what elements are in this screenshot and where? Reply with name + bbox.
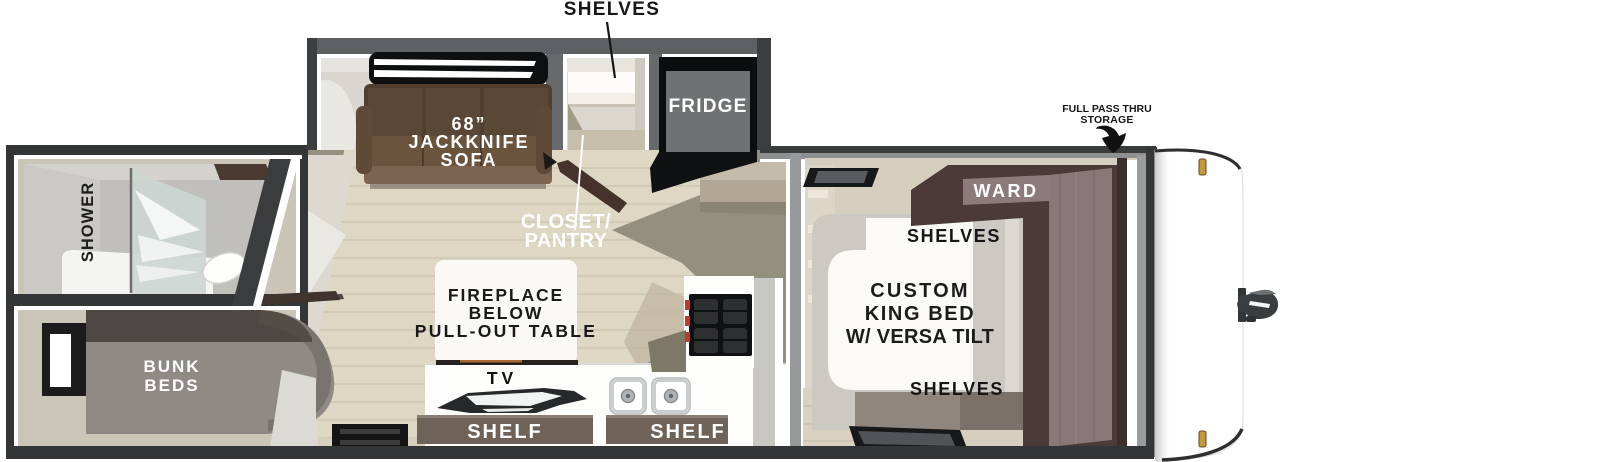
- svg-text:SHELVES: SHELVES: [910, 379, 1004, 399]
- svg-text:SHELF: SHELF: [467, 421, 543, 443]
- svg-text:STORAGE: STORAGE: [1080, 114, 1133, 126]
- svg-text:SHELF: SHELF: [650, 421, 726, 443]
- svg-text:KING BED: KING BED: [865, 303, 976, 325]
- svg-text:W/ VERSA TILT: W/ VERSA TILT: [846, 326, 994, 348]
- svg-text:FRIDGE: FRIDGE: [669, 96, 748, 117]
- svg-text:BEDS: BEDS: [144, 376, 199, 395]
- svg-text:PULL-OUT TABLE: PULL-OUT TABLE: [415, 321, 598, 341]
- svg-text:SHOWER: SHOWER: [79, 182, 97, 262]
- svg-text:68”: 68”: [451, 114, 486, 134]
- svg-text:PANTRY: PANTRY: [525, 230, 608, 252]
- svg-text:FIREPLACE: FIREPLACE: [448, 285, 564, 305]
- svg-text:JACKKNIFE: JACKKNIFE: [408, 132, 529, 152]
- svg-text:SHELVES: SHELVES: [564, 0, 660, 20]
- svg-text:WARD: WARD: [974, 181, 1039, 201]
- svg-text:SHELVES: SHELVES: [907, 226, 1001, 246]
- svg-text:BELOW: BELOW: [469, 303, 544, 323]
- svg-text:SOFA: SOFA: [440, 150, 497, 170]
- svg-text:CUSTOM: CUSTOM: [870, 280, 970, 302]
- svg-text:BUNK: BUNK: [143, 357, 200, 376]
- svg-text:TV: TV: [487, 368, 517, 388]
